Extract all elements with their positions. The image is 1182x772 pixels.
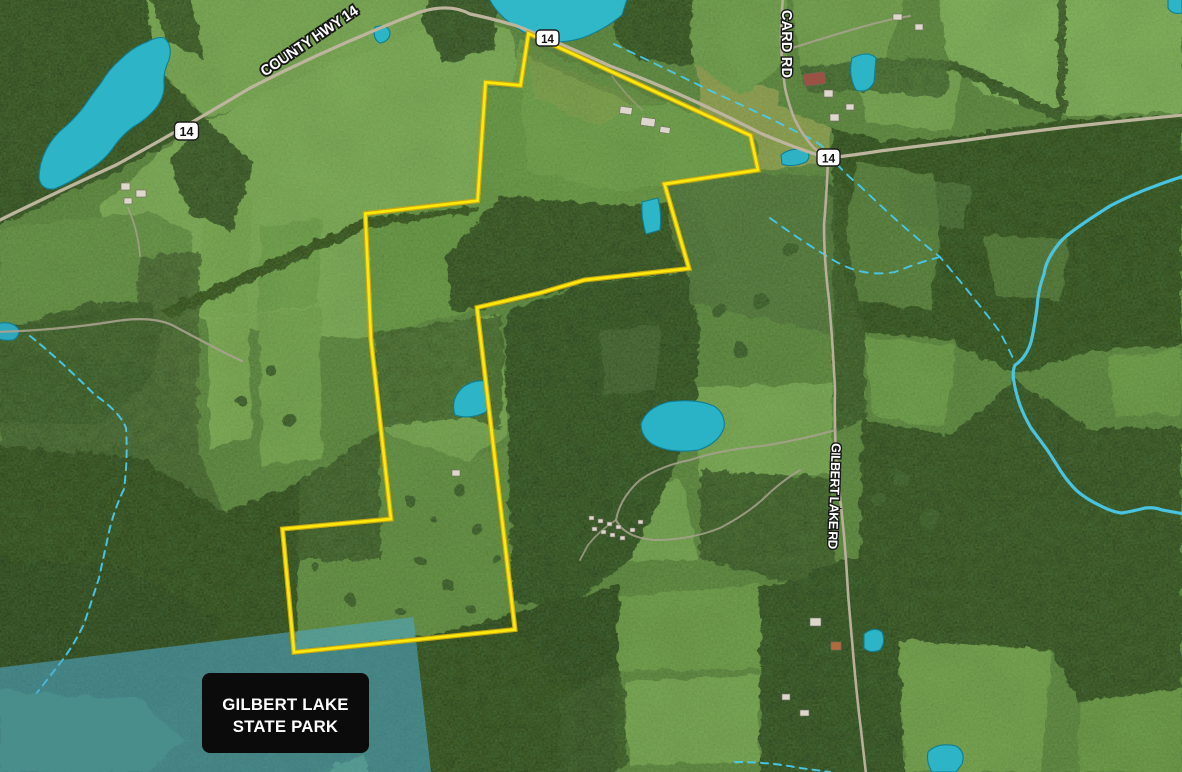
svg-text:14: 14 xyxy=(180,125,194,139)
svg-text:14: 14 xyxy=(541,34,554,46)
svg-text:GILBERT LAKE: GILBERT LAKE xyxy=(222,695,348,714)
svg-text:CARD RD: CARD RD xyxy=(778,10,794,78)
svg-text:14: 14 xyxy=(822,152,836,166)
svg-text:STATE PARK: STATE PARK xyxy=(233,717,338,736)
